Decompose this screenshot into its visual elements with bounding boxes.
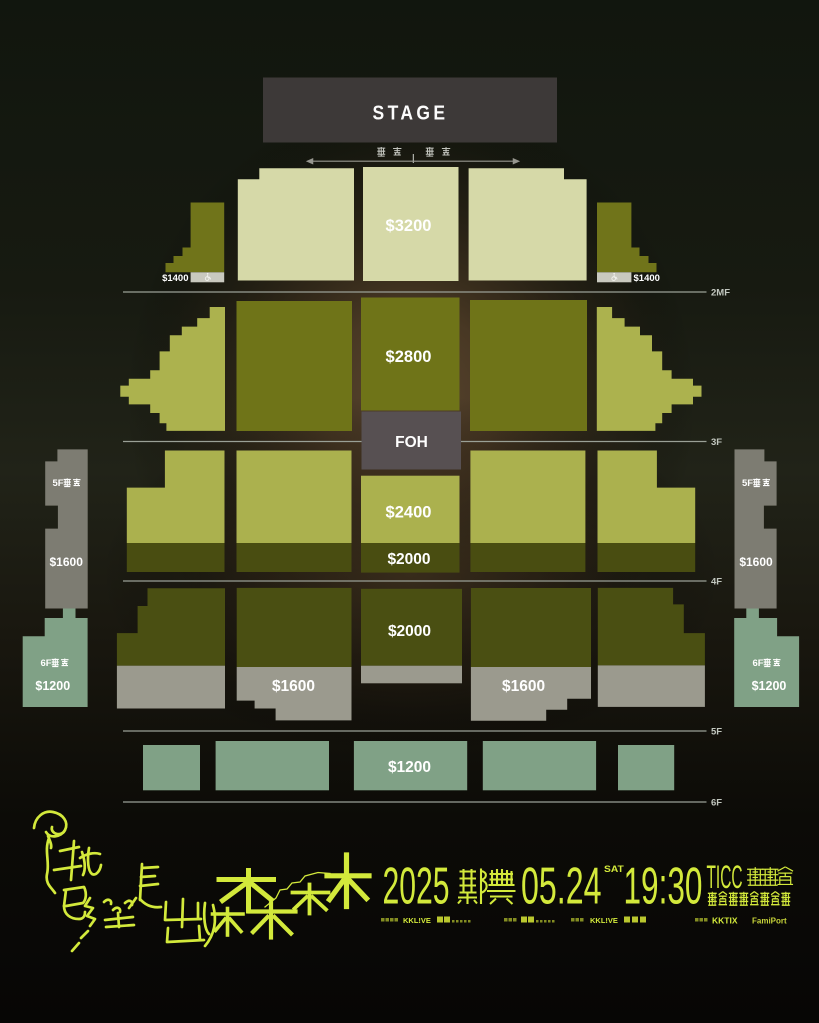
svg-text:5F: 5F (52, 478, 63, 489)
svg-text:FOH: FOH (395, 434, 428, 451)
svg-text:$1200: $1200 (388, 759, 431, 776)
svg-text:$1400: $1400 (162, 273, 188, 284)
svg-text:$2400: $2400 (386, 503, 432, 521)
svg-text:STAGE: STAGE (373, 102, 449, 125)
svg-text:4F: 4F (711, 576, 722, 587)
svg-text:6F: 6F (752, 658, 763, 669)
svg-text:2MF: 2MF (711, 287, 730, 298)
svg-text:$2000: $2000 (388, 623, 431, 640)
svg-text:3F: 3F (711, 437, 722, 448)
svg-text:$1200: $1200 (752, 679, 787, 693)
svg-text:$2000: $2000 (387, 551, 430, 568)
svg-text:2025: 2025 (383, 857, 450, 915)
svg-text:$1600: $1600 (50, 555, 84, 569)
svg-text:SAT: SAT (604, 864, 624, 874)
svg-text:$1600: $1600 (502, 678, 545, 695)
svg-text:$2800: $2800 (386, 348, 432, 366)
svg-text:5F: 5F (711, 726, 722, 737)
svg-text:KKL!VE: KKL!VE (403, 916, 431, 925)
svg-text:5F: 5F (742, 478, 753, 489)
svg-text:FamiPort: FamiPort (752, 917, 787, 926)
svg-text:TICC: TICC (707, 859, 743, 895)
svg-text:$1200: $1200 (35, 679, 70, 693)
svg-text:$1400: $1400 (634, 273, 660, 284)
svg-text:05.24: 05.24 (521, 857, 602, 915)
svg-text:$1600: $1600 (739, 555, 773, 569)
svg-text:KKL!VE: KKL!VE (590, 916, 618, 925)
svg-text:KKTIX: KKTIX (712, 916, 738, 926)
svg-text:6F: 6F (711, 797, 722, 808)
svg-text:$1600: $1600 (272, 678, 315, 695)
svg-text:6F: 6F (40, 658, 51, 669)
svg-text:$3200: $3200 (386, 217, 432, 235)
svg-text:19:30: 19:30 (624, 857, 703, 915)
